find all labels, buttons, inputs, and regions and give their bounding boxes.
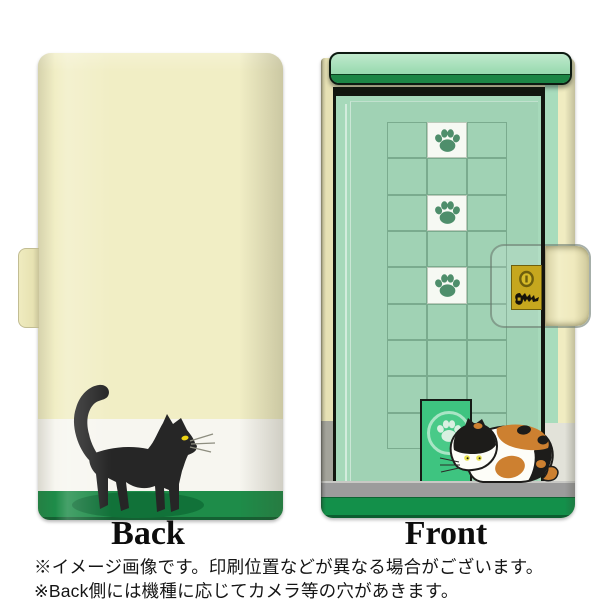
case-front-cover <box>321 52 575 520</box>
paw-print-icon <box>434 127 461 154</box>
black-cat-illustration <box>38 53 283 520</box>
window-pane <box>467 376 507 412</box>
window-pane <box>467 122 507 158</box>
paw-print-icon <box>436 418 462 449</box>
front-label: Front <box>356 517 536 551</box>
back-label: Back <box>58 517 238 551</box>
spine-gray-band <box>321 421 333 481</box>
cat-door-porthole <box>427 411 471 455</box>
cat-tail <box>74 385 109 461</box>
paw-print-icon <box>436 418 462 444</box>
strap-tab-back-view <box>18 248 39 328</box>
floor-band <box>321 481 575 497</box>
lock-plate <box>511 265 542 310</box>
window-pane <box>467 413 507 449</box>
window-pane <box>387 267 427 303</box>
disclaimer-line-2: ※Back側には機種に応じてカメラ等の穴があきます。 <box>34 580 594 603</box>
window-pane <box>427 340 467 376</box>
strap-flap-solid <box>545 246 589 326</box>
case-top-lid-bar <box>329 52 572 85</box>
window-pane <box>427 231 467 267</box>
door-highlight <box>345 104 347 481</box>
window-pane <box>427 304 467 340</box>
window-pane <box>467 195 507 231</box>
disclaimer-text: ※イメージ画像です。印刷位置などが異なる場合がございます。 ※Back側には機種… <box>34 556 594 603</box>
window-pane <box>467 340 507 376</box>
window-pane <box>427 158 467 194</box>
window-pane <box>387 231 427 267</box>
front-green-band <box>321 497 575 518</box>
product-mockup-image: Back Front ※イメージ画像です。印刷位置などが異なる場合がございます。… <box>0 0 600 600</box>
paw-window-tile <box>427 267 467 303</box>
window-pane <box>387 340 427 376</box>
keyhole-icon <box>517 270 536 290</box>
paw-print-icon <box>434 272 461 299</box>
cat-door <box>420 399 472 481</box>
lid-green-strip <box>331 74 570 83</box>
window-pane <box>387 122 427 158</box>
case-back-cover <box>38 53 283 520</box>
window-pane <box>387 158 427 194</box>
window-pane <box>387 195 427 231</box>
window-pane <box>467 158 507 194</box>
edge-white-band <box>545 423 575 481</box>
paw-window-tile <box>427 195 467 231</box>
disclaimer-line-1: ※イメージ画像です。印刷位置などが異なる場合がございます。 <box>34 556 594 580</box>
key-icon <box>513 290 541 308</box>
paw-print-icon <box>434 199 461 226</box>
spine-edge <box>321 58 333 518</box>
window-pane <box>387 304 427 340</box>
paw-window-tile <box>427 122 467 158</box>
